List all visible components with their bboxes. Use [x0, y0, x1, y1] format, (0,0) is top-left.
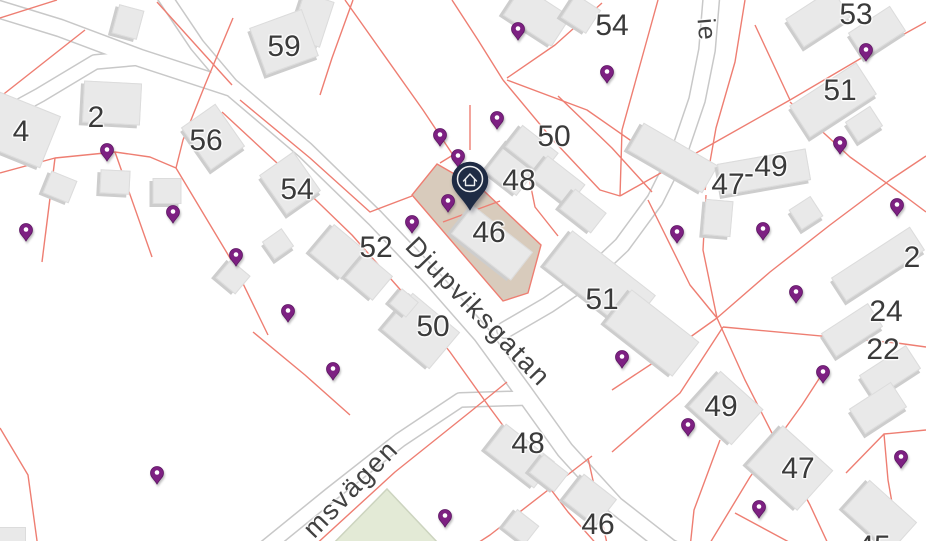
- building: [702, 199, 733, 237]
- house-number-label: 50: [537, 122, 570, 152]
- building: [0, 527, 26, 541]
- building: [99, 169, 130, 195]
- parcel-boundary-line: [735, 513, 800, 541]
- house-number-label: 24: [869, 297, 902, 327]
- house-number-label: 46: [472, 218, 505, 248]
- street-name-label: ie: [693, 17, 720, 43]
- house-number-label: 54: [280, 175, 313, 205]
- house-number-label: 54: [595, 11, 628, 41]
- house-number-label: 59: [267, 32, 300, 62]
- house-number-label: 22: [866, 335, 899, 365]
- house-number-label: 56: [189, 126, 222, 156]
- house-number-label: 48: [511, 429, 544, 459]
- house-number-label: 47: [711, 170, 744, 200]
- house-number-label: 49: [704, 392, 737, 422]
- house-number-label: 51: [585, 285, 618, 315]
- parcel-boundary-line: [452, 0, 503, 80]
- house-number-label: 45: [857, 532, 890, 541]
- house-number-label: 46: [581, 510, 614, 540]
- house-number-label: 48: [502, 166, 535, 196]
- house-number-label: -: [744, 159, 754, 189]
- house-number-label: 2: [88, 103, 105, 133]
- house-number-label: 53: [839, 0, 872, 30]
- parcel-boundary-line: [0, 428, 38, 541]
- house-number-label: 4: [13, 117, 30, 147]
- parcel-boundary-line: [690, 440, 720, 541]
- map-canvas[interactable]: 5954535142565048465452505147-49224224947…: [0, 0, 926, 541]
- house-number-label: 49: [754, 152, 787, 182]
- parcel-boundary-line: [755, 25, 790, 100]
- house-number-label: 50: [416, 312, 449, 342]
- house-number-label: 51: [823, 76, 856, 106]
- parcel-boundary-line: [253, 332, 350, 415]
- house-number-label: 2: [904, 243, 921, 273]
- parcel-boundary-line: [846, 434, 884, 473]
- parcel-boundary-line: [115, 152, 152, 257]
- house-number-label: 52: [359, 233, 392, 263]
- building: [153, 178, 182, 204]
- house-number-label: 47: [781, 454, 814, 484]
- parcel-boundary-line: [345, 0, 453, 163]
- parcel-boundary-line: [176, 168, 268, 335]
